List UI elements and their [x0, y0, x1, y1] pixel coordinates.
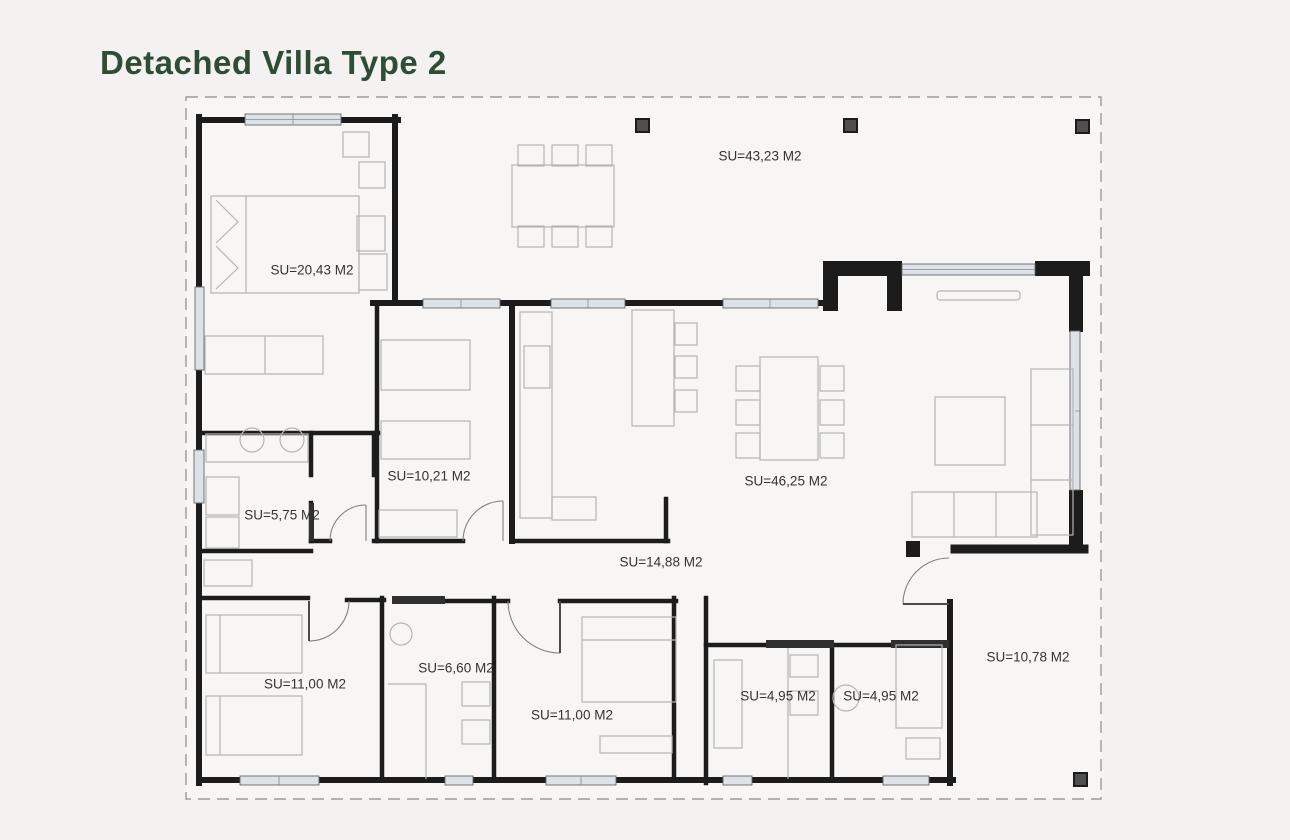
room-label-bathroom-4: SU=4,95 M2	[843, 689, 918, 704]
room-label-bedroom-3: SU=11,00 M2	[264, 677, 346, 692]
column	[1076, 120, 1089, 133]
floor-plan-page: Detached Villa Type 2	[0, 0, 1290, 840]
room-label-bedroom-2: SU=10,21 M2	[388, 469, 471, 484]
room-label-side-terrace: SU=10,78 M2	[987, 650, 1070, 665]
column	[1074, 773, 1087, 786]
room-label-kitchen: SU=14,88 M2	[620, 555, 703, 570]
column	[844, 119, 857, 132]
room-label-living-dining-room: SU=46,25 M2	[745, 474, 828, 489]
room-label-bathroom-2: SU=6,60 M2	[418, 661, 493, 676]
floor-plan-drawing	[0, 0, 1290, 840]
room-label-bathroom-3: SU=4,95 M2	[740, 689, 815, 704]
column	[636, 119, 649, 132]
room-label-bedroom-4: SU=11,00 M2	[531, 708, 613, 723]
room-label-bathroom-1: SU=5,75 M2	[244, 508, 319, 523]
room-label-top-terrace: SU=43,23 M2	[719, 149, 802, 164]
plot-boundary	[186, 97, 1101, 799]
room-label-master-bedroom: SU=20,43 M2	[271, 263, 354, 278]
